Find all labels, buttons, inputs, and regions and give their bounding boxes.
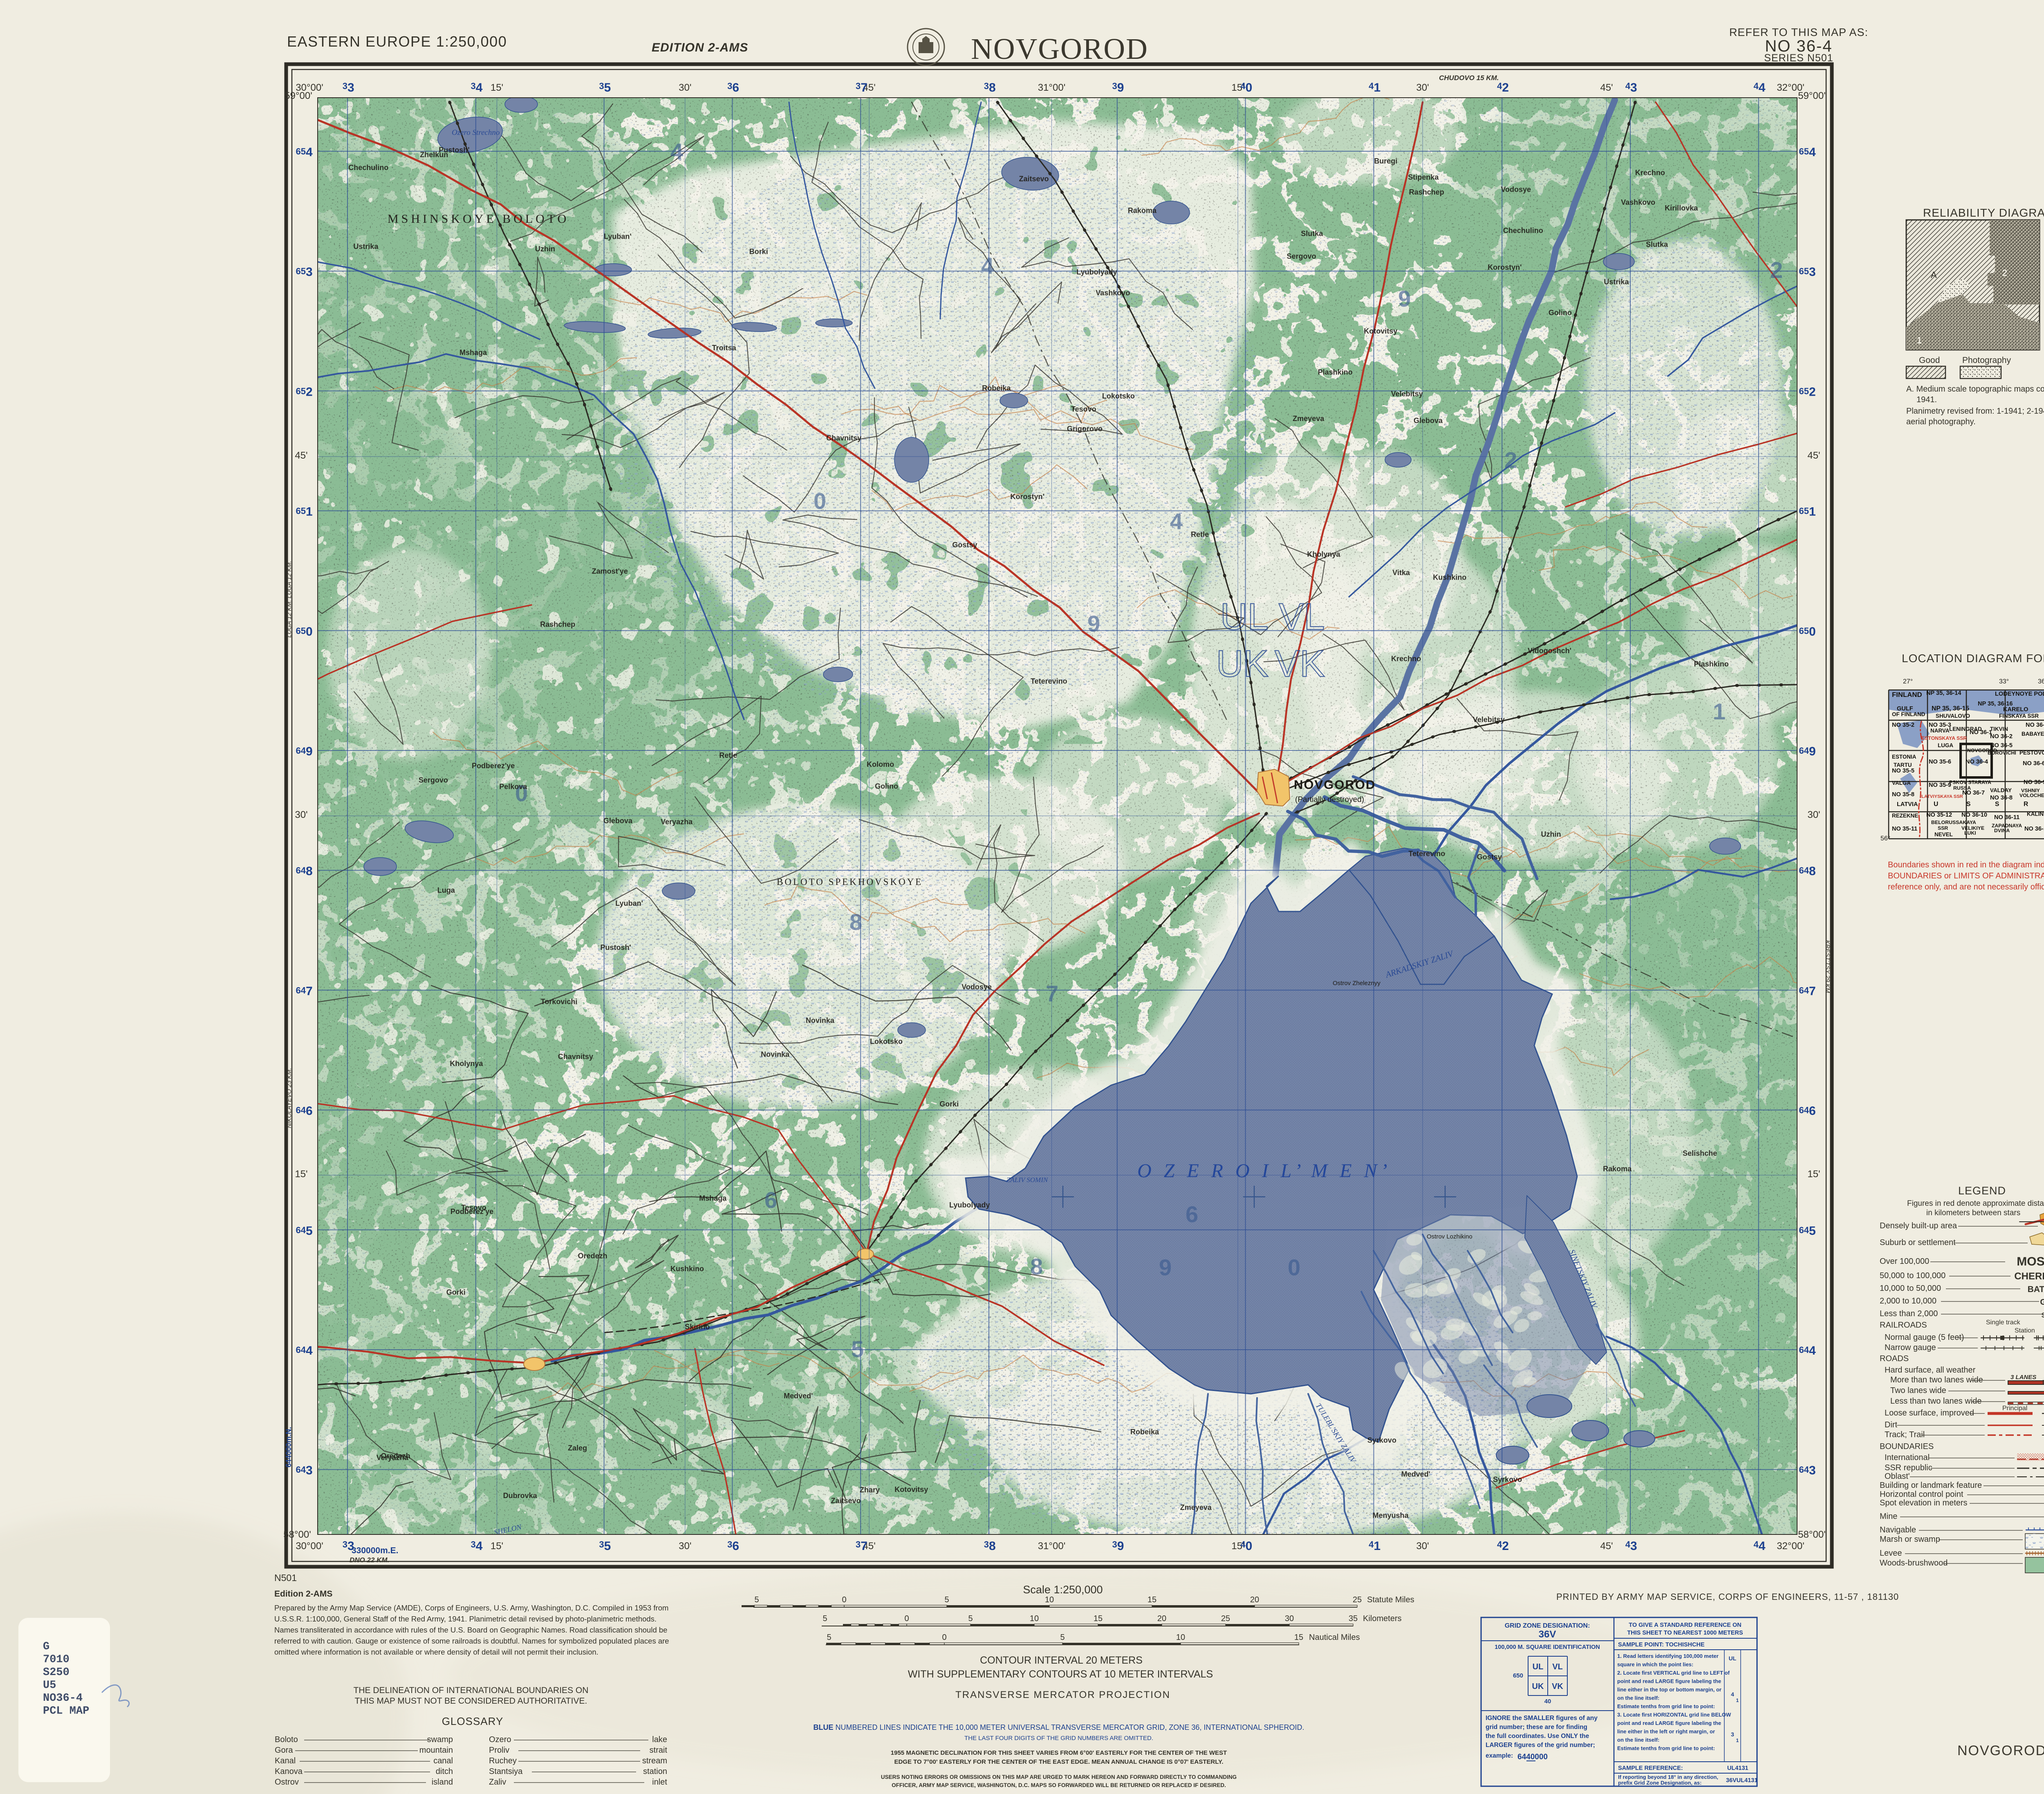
svg-text:3: 3	[343, 1539, 347, 1550]
svg-text:6: 6	[306, 1104, 313, 1118]
svg-text:Ustrika: Ustrika	[353, 242, 379, 251]
svg-text:3: 3	[1630, 1539, 1637, 1553]
svg-text:Kanova: Kanova	[275, 1767, 303, 1776]
svg-text:Golino: Golino	[1549, 309, 1572, 317]
svg-text:Novinka: Novinka	[806, 1017, 835, 1025]
svg-text:0: 0	[1246, 81, 1253, 94]
svg-text:aerial photography.: aerial photography.	[1906, 417, 1976, 426]
svg-text:7: 7	[306, 984, 313, 998]
svg-text:strait: strait	[650, 1746, 668, 1755]
svg-text:Single track: Single track	[1986, 1319, 2021, 1326]
svg-text:GLOSSARY: GLOSSARY	[442, 1715, 504, 1727]
svg-text:Krechno: Krechno	[1391, 655, 1421, 663]
svg-text:2: 2	[1809, 385, 1816, 399]
svg-text:S250: S250	[43, 1666, 69, 1679]
svg-text:4: 4	[1809, 1344, 1816, 1357]
svg-text:reference only, and are not ne: reference only, and are not necessarily …	[1888, 882, 2044, 891]
svg-text:KREST'TSY 29 KM.: KREST'TSY 29 KM.	[1824, 940, 1831, 994]
svg-text:30°00': 30°00'	[296, 1541, 323, 1552]
svg-text:64: 64	[1799, 1465, 1809, 1475]
svg-text:Mshaga: Mshaga	[459, 348, 487, 356]
svg-text:LODEYNOYE POLE: LODEYNOYE POLE	[1995, 691, 2044, 697]
svg-text:Zmeyeva: Zmeyeva	[1180, 1503, 1212, 1512]
svg-text:3: 3	[1112, 1539, 1117, 1550]
svg-text:4: 4	[1754, 1539, 1759, 1550]
svg-text:0: 0	[904, 1614, 909, 1623]
svg-text:Boundaries shown in red in the: Boundaries shown in red in the diagram i…	[1888, 860, 2044, 869]
svg-text:REZEKNE: REZEKNE	[1892, 813, 1918, 819]
svg-text:36V: 36V	[1539, 1629, 1556, 1640]
svg-text:Lyubolyady: Lyubolyady	[949, 1201, 990, 1209]
svg-text:ESTONSKAYA SSR: ESTONSKAYA SSR	[1921, 735, 1967, 741]
svg-text:Buregi: Buregi	[1374, 157, 1397, 165]
svg-text:GRID ZONE DESIGNATION:: GRID ZONE DESIGNATION:	[1505, 1622, 1590, 1629]
svg-text:NO 36-7: NO 36-7	[1962, 790, 1985, 796]
svg-text:6: 6	[764, 1187, 777, 1213]
svg-text:station: station	[643, 1767, 667, 1776]
svg-text:Lyuban': Lyuban'	[604, 233, 632, 241]
svg-text:TRANSVERSE MERCATOR PROJECTION: TRANSVERSE MERCATOR PROJECTION	[955, 1689, 1170, 1700]
svg-text:Track; Trail: Track; Trail	[1885, 1430, 1925, 1439]
svg-text:Spot elevation in meters: Spot elevation in meters	[1880, 1498, 1968, 1507]
svg-text:4: 4	[1625, 1539, 1631, 1550]
svg-text:BOROVICHI: BOROVICHI	[1988, 750, 2016, 756]
svg-text:Navigable: Navigable	[1880, 1525, 1916, 1534]
svg-text:Woods-brushwood: Woods-brushwood	[1880, 1559, 1948, 1568]
svg-text:2: 2	[1502, 81, 1509, 94]
svg-text:Levee: Levee	[1880, 1549, 1902, 1558]
svg-text:Uzhin: Uzhin	[535, 245, 555, 253]
svg-text:WITH SUPPLEMENTARY CONTOURS AT: WITH SUPPLEMENTARY CONTOURS AT 10 METER …	[908, 1669, 1213, 1680]
svg-text:6: 6	[1809, 1104, 1816, 1118]
svg-text:7: 7	[861, 1539, 867, 1553]
svg-text:O Z E R O I L’ M E N’: O Z E R O I L’ M E N’	[1137, 1160, 1391, 1182]
svg-text:More than two lanes wide: More than two lanes wide	[1890, 1375, 1983, 1384]
svg-text:58°00': 58°00'	[283, 1529, 311, 1540]
svg-text:3: 3	[347, 81, 354, 94]
svg-text:Kushkino: Kushkino	[670, 1265, 704, 1273]
svg-text:NO36-4: NO36-4	[43, 1692, 83, 1704]
svg-text:island: island	[432, 1778, 453, 1787]
svg-text:FINLAND: FINLAND	[1892, 691, 1922, 699]
svg-text:TIKVIN: TIKVIN	[1990, 726, 2008, 732]
svg-text:Lokotsko: Lokotsko	[870, 1037, 903, 1046]
svg-text:1: 1	[306, 505, 313, 519]
svg-text:NEVEL: NEVEL	[1934, 831, 1953, 838]
svg-text:Vitka: Vitka	[1392, 569, 1410, 577]
svg-text:3. Locate first HORIZONTAL gri: 3. Locate first HORIZONTAL grid line BEL…	[1617, 1712, 1731, 1718]
svg-text:NO 36-3: NO 36-3	[2026, 722, 2044, 728]
svg-text:9: 9	[1159, 1254, 1172, 1280]
svg-text:NO 36-10: NO 36-10	[1961, 812, 1987, 818]
svg-text:4: 4	[1369, 1539, 1374, 1550]
svg-text:65: 65	[296, 266, 306, 276]
svg-text:Rakoma: Rakoma	[1128, 206, 1157, 215]
svg-text:Less than 2,000: Less than 2,000	[1880, 1309, 1938, 1318]
svg-text:Proliv: Proliv	[489, 1746, 509, 1755]
svg-text:4: 4	[1240, 1539, 1246, 1550]
svg-text:BOUNDARIES: BOUNDARIES	[1880, 1442, 1934, 1451]
svg-text:S: S	[1995, 801, 1999, 808]
svg-text:15: 15	[1148, 1595, 1156, 1604]
svg-text:ESTONIA: ESTONIA	[1892, 754, 1916, 760]
svg-text:Mine: Mine	[1880, 1512, 1897, 1521]
svg-text:Veryazha: Veryazha	[661, 818, 693, 826]
svg-text:RELIABILITY DIAGRAM: RELIABILITY DIAGRAM	[1923, 206, 2044, 219]
svg-text:100,000 M. SQUARE IDENTIFICATI: 100,000 M. SQUARE IDENTIFICATION	[1495, 1644, 1600, 1651]
svg-text:Station: Station	[2015, 1327, 2035, 1334]
svg-text:Kotovitsy: Kotovitsy	[1364, 327, 1397, 335]
svg-text:Stantsiya: Stantsiya	[489, 1767, 523, 1776]
svg-text:Slutka: Slutka	[1301, 229, 1323, 237]
svg-text:THIS SHEET TO NEAREST 1000 MET: THIS SHEET TO NEAREST 1000 METERS	[1627, 1630, 1743, 1636]
svg-text:LEGEND: LEGEND	[1958, 1185, 2006, 1197]
svg-text:Chavnitsy: Chavnitsy	[826, 434, 861, 442]
svg-text:3: 3	[1112, 81, 1117, 91]
svg-text:THE DELINEATION OF INTERNATION: THE DELINEATION OF INTERNATIONAL BOUNDAR…	[354, 1686, 589, 1695]
svg-text:Gostsy: Gostsy	[1477, 853, 1502, 861]
svg-text:65: 65	[296, 146, 306, 157]
svg-text:Good: Good	[1919, 356, 1940, 365]
svg-text:on the line itself:: on the line itself:	[1617, 1737, 1659, 1743]
svg-text:5: 5	[604, 81, 611, 94]
svg-text:1. Read letters identifying: 1. Read letters identifying 100,000 mete…	[1617, 1653, 1719, 1659]
svg-text:Plashkino: Plashkino	[1318, 368, 1353, 376]
svg-text:1: 1	[1736, 1698, 1739, 1703]
svg-text:30': 30'	[1807, 809, 1820, 820]
svg-text:NO 35-12: NO 35-12	[1926, 812, 1952, 818]
svg-text:UK: UK	[1216, 643, 1269, 685]
svg-text:VOLOCHEK: VOLOCHEK	[2019, 793, 2044, 798]
svg-text:Slutka: Slutka	[1646, 240, 1668, 249]
svg-text:NO 35-5: NO 35-5	[1892, 768, 1914, 774]
svg-text:3: 3	[343, 81, 347, 91]
svg-text:6440000: 6440000	[1517, 1753, 1548, 1761]
svg-text:LARGER figures of the grid num: LARGER figures of the grid number;	[1486, 1742, 1595, 1749]
svg-text:Robeika: Robeika	[1130, 1428, 1159, 1436]
svg-text:ZALIV SOMIN: ZALIV SOMIN	[1006, 1176, 1049, 1184]
svg-text:31°00': 31°00'	[1038, 82, 1066, 93]
svg-text:Kotovitsy: Kotovitsy	[894, 1485, 928, 1494]
svg-text:NO 35-6: NO 35-6	[1929, 759, 1951, 765]
svg-text:PRINTED BY ARMY MAP SERVICE, C: PRINTED BY ARMY MAP SERVICE, CORPS OF EN…	[1556, 1592, 1899, 1602]
svg-text:64: 64	[296, 865, 306, 876]
svg-text:NO 36-5: NO 36-5	[1990, 742, 2013, 749]
svg-text:UL4131: UL4131	[1727, 1765, 1748, 1772]
svg-text:Rashchep: Rashchep	[540, 620, 575, 628]
svg-text:Tesovo: Tesovo	[1071, 405, 1096, 413]
svg-text:65: 65	[1799, 146, 1809, 157]
svg-text:Skirino: Skirino	[685, 1323, 710, 1331]
svg-text:LATVIA: LATVIA	[1897, 801, 1918, 808]
svg-text:Kholynya: Kholynya	[450, 1059, 483, 1068]
svg-text:Zhelkun: Zhelkun	[420, 150, 448, 159]
svg-text:4: 4	[1809, 146, 1816, 159]
svg-text:5: 5	[754, 1595, 759, 1604]
svg-text:Sergovo: Sergovo	[419, 776, 448, 784]
svg-text:NO 36-9: NO 36-9	[2024, 779, 2044, 786]
svg-text:65: 65	[296, 626, 306, 636]
svg-text:30': 30'	[679, 1541, 691, 1552]
svg-text:6: 6	[1186, 1201, 1198, 1227]
svg-text:REFER TO THIS MAP AS:: REFER TO THIS MAP AS:	[1729, 26, 1868, 38]
svg-text:(Partially destroyed): (Partially destroyed)	[1295, 795, 1364, 804]
svg-text:2. Locate first VERTICAL grid: 2. Locate first VERTICAL grid line to LE…	[1617, 1670, 1730, 1676]
svg-text:Uzhin: Uzhin	[1541, 830, 1561, 838]
svg-text:NP 35, 36-14: NP 35, 36-14	[1926, 690, 1961, 697]
svg-text:6: 6	[732, 81, 739, 94]
svg-text:VK: VK	[1552, 1682, 1563, 1691]
svg-text:3: 3	[599, 81, 604, 91]
svg-text:NP 35, 36-15: NP 35, 36-15	[1932, 705, 1969, 712]
svg-text:Zaleg: Zaleg	[568, 1444, 587, 1452]
svg-text:330000m.E.: 330000m.E.	[352, 1546, 398, 1555]
svg-text:Vashkovo: Vashkovo	[1621, 198, 1655, 206]
svg-text:0: 0	[306, 625, 313, 638]
svg-text:Syrkovo: Syrkovo	[1367, 1436, 1396, 1445]
svg-text:UL: UL	[1220, 596, 1269, 638]
svg-text:Pustosh': Pustosh'	[600, 943, 631, 952]
svg-text:3: 3	[727, 1539, 732, 1550]
svg-text:7: 7	[861, 81, 867, 94]
svg-text:VALGA: VALGA	[1892, 780, 1911, 786]
svg-text:stream: stream	[642, 1756, 667, 1765]
svg-text:on the line itself:: on the line itself:	[1617, 1695, 1659, 1701]
svg-text:1: 1	[1713, 699, 1726, 724]
svg-text:45': 45'	[1807, 450, 1820, 461]
svg-text:5: 5	[851, 1336, 864, 1362]
svg-text:1: 1	[1374, 1539, 1381, 1553]
svg-text:Rashchep: Rashchep	[1409, 188, 1444, 196]
svg-text:omitted where information is n: omitted where information is not availab…	[274, 1648, 598, 1656]
svg-text:36VUL4131: 36VUL4131	[1726, 1777, 1757, 1784]
svg-text:4: 4	[1731, 1691, 1734, 1698]
svg-text:Velebitsy: Velebitsy	[1391, 390, 1423, 398]
svg-text:EDITION 2-AMS: EDITION 2-AMS	[652, 41, 748, 54]
svg-text:LATVIYSKAYA SSR: LATVIYSKAYA SSR	[1921, 794, 1963, 799]
svg-text:RAILROADS: RAILROADS	[1880, 1321, 1927, 1330]
svg-text:Narrow gauge: Narrow gauge	[1885, 1343, 1936, 1352]
svg-text:40: 40	[1544, 1698, 1551, 1705]
svg-text:U5: U5	[43, 1680, 56, 1692]
svg-text:45': 45'	[1600, 82, 1613, 93]
svg-text:5: 5	[1060, 1633, 1065, 1642]
svg-text:VK: VK	[1275, 643, 1325, 685]
svg-text:U: U	[1934, 801, 1938, 808]
svg-text:Novinka: Novinka	[761, 1050, 790, 1059]
svg-text:EDGE TO 7°00' EASTERLY FOR THE: EDGE TO 7°00' EASTERLY FOR THE CENTER OF…	[894, 1758, 1223, 1765]
svg-text:CHERNIGOV: CHERNIGOV	[2014, 1271, 2044, 1282]
svg-text:650: 650	[1513, 1672, 1523, 1679]
svg-text:line either in the top or bott: line either in the top or bottom margin,…	[1617, 1686, 1721, 1693]
svg-text:Ostrov Lozhikino: Ostrov Lozhikino	[1427, 1233, 1472, 1240]
svg-text:45': 45'	[1600, 1541, 1613, 1552]
svg-text:SAMPLE POINT: TOCHISHCHE: SAMPLE POINT: TOCHISHCHE	[1618, 1642, 1705, 1648]
svg-text:3: 3	[599, 1539, 604, 1550]
svg-text:SSR republic: SSR republic	[1885, 1463, 1932, 1472]
svg-text:58°00': 58°00'	[1798, 1529, 1826, 1540]
svg-text:65: 65	[296, 506, 306, 516]
svg-text:64: 64	[1799, 865, 1809, 876]
svg-text:Loose surface, improved: Loose surface, improved	[1885, 1409, 1974, 1418]
svg-text:NOVGOROD, U.S.S.R.: NOVGOROD, U.S.S.R.	[1957, 1743, 2044, 1758]
svg-text:R: R	[2024, 801, 2028, 808]
svg-text:Chechulino: Chechulino	[1503, 226, 1543, 235]
svg-text:9: 9	[1398, 286, 1411, 311]
svg-text:Kholynya: Kholynya	[1307, 550, 1340, 558]
svg-text:4: 4	[981, 253, 994, 279]
svg-text:Zhary: Zhary	[860, 1486, 880, 1494]
svg-text:International: International	[1885, 1453, 1930, 1462]
svg-text:FINSKAYA SSR: FINSKAYA SSR	[1999, 713, 2039, 719]
svg-text:4: 4	[476, 81, 483, 94]
svg-text:9: 9	[306, 745, 313, 758]
svg-text:Gorki: Gorki	[939, 1100, 959, 1108]
svg-text:5: 5	[944, 1595, 949, 1604]
svg-text:SSR: SSR	[1938, 825, 1948, 831]
svg-text:TARTU: TARTU	[1894, 762, 1912, 768]
svg-text:64: 64	[1799, 1225, 1809, 1235]
svg-text:BABAYEVO: BABAYEVO	[2022, 731, 2044, 737]
svg-text:NOVGOROD: NOVGOROD	[1294, 777, 1376, 792]
svg-text:65: 65	[1799, 386, 1809, 396]
svg-text:USERS NOTING ERRORS OR OMISSIO: USERS NOTING ERRORS OR OMISSIONS ON THIS…	[881, 1774, 1237, 1780]
svg-text:Torkovichi: Torkovichi	[541, 997, 578, 1006]
svg-text:Ozero: Ozero	[489, 1735, 511, 1744]
svg-text:KARELO: KARELO	[2003, 706, 2028, 713]
svg-text:OF FINLAND: OF FINLAND	[1892, 711, 1925, 717]
svg-text:64: 64	[1799, 1105, 1809, 1115]
svg-text:30': 30'	[1416, 82, 1429, 93]
svg-text:65: 65	[296, 386, 306, 396]
svg-text:64: 64	[296, 985, 306, 995]
svg-text:Mshaga: Mshaga	[699, 1194, 727, 1202]
svg-text:Plashkino: Plashkino	[1694, 660, 1729, 668]
svg-text:4: 4	[1170, 508, 1183, 534]
svg-text:7: 7	[1046, 981, 1058, 1006]
svg-text:Hard surface, all weather: Hard surface, all weather	[1885, 1366, 1976, 1375]
svg-text:59°00': 59°00'	[285, 90, 312, 101]
svg-text:Grigorovo: Grigorovo	[1067, 425, 1103, 433]
svg-text:15': 15'	[295, 1169, 307, 1180]
svg-text:Retle: Retle	[1191, 531, 1209, 539]
svg-text:4: 4	[1759, 1539, 1766, 1553]
svg-text:Selishche: Selishche	[1683, 1149, 1717, 1158]
svg-text:Medved': Medved'	[1401, 1470, 1430, 1478]
svg-text:Sergovo: Sergovo	[1286, 252, 1316, 260]
svg-text:2: 2	[1502, 1539, 1509, 1553]
svg-text:64: 64	[296, 1465, 306, 1475]
svg-text:Zmeyeva: Zmeyeva	[1293, 414, 1325, 423]
svg-text:KALININ: KALININ	[2027, 811, 2044, 817]
svg-text:30': 30'	[295, 809, 307, 820]
svg-text:Estimate tenths from grid: Estimate tenths from grid line to point:	[1617, 1745, 1715, 1751]
svg-text:0: 0	[942, 1633, 946, 1642]
svg-text:3: 3	[984, 81, 989, 91]
svg-text:Dirt: Dirt	[1885, 1420, 1898, 1429]
svg-text:DNO 22 KM.: DNO 22 KM.	[350, 1556, 389, 1564]
svg-text:4: 4	[670, 139, 683, 164]
svg-text:10: 10	[1045, 1595, 1054, 1604]
svg-text:Suburb or settlement: Suburb or settlement	[1880, 1238, 1956, 1247]
svg-text:10: 10	[1176, 1633, 1185, 1642]
svg-text:5: 5	[306, 1224, 313, 1238]
svg-text:1955 MAGNETIC DECLINATION FOR: 1955 MAGNETIC DECLINATION FOR THIS SHEET…	[891, 1749, 1227, 1756]
svg-text:6: 6	[732, 1539, 739, 1553]
svg-text:Chechulino: Chechulino	[348, 163, 388, 172]
svg-text:30: 30	[1285, 1614, 1294, 1623]
svg-text:the full coordinates. Use ONLY: the full coordinates. Use ONLY the	[1486, 1733, 1589, 1740]
svg-text:LOCATION DIAGRAM FOR NO 36-4: LOCATION DIAGRAM FOR NO 36-4	[1902, 652, 2044, 665]
svg-text:65: 65	[1799, 506, 1809, 516]
svg-text:Vidogoshch': Vidogoshch'	[1528, 647, 1571, 655]
svg-text:Scale 1:250,000: Scale 1:250,000	[1023, 1583, 1103, 1596]
svg-text:15: 15	[1294, 1633, 1303, 1642]
svg-text:56°: 56°	[1880, 835, 1890, 842]
svg-text:Zaliv: Zaliv	[489, 1778, 506, 1787]
svg-text:NO 36-2: NO 36-2	[1990, 733, 2013, 740]
svg-text:NO 35-8: NO 35-8	[1892, 791, 1914, 798]
svg-text:N501: N501	[274, 1572, 297, 1583]
svg-text:PSKOV STARAYA: PSKOV STARAYA	[1949, 779, 1991, 785]
svg-text:Glebova: Glebova	[603, 817, 633, 825]
svg-text:Vashkovo: Vashkovo	[1096, 289, 1130, 297]
svg-text:9: 9	[1117, 81, 1124, 94]
svg-text:MOSKVA: MOSKVA	[2017, 1255, 2044, 1268]
svg-text:If reporting beyond 18° in any: If reporting beyond 18° in any direction…	[1618, 1774, 1718, 1780]
svg-text:2,000 to 10,000: 2,000 to 10,000	[1880, 1297, 1936, 1306]
svg-text:lake: lake	[652, 1735, 667, 1744]
svg-text:NO 36-12: NO 36-12	[2024, 826, 2044, 832]
svg-text:Two lanes wide: Two lanes wide	[1890, 1386, 1946, 1395]
svg-text:20: 20	[1250, 1595, 1259, 1604]
svg-text:Zamost'ye: Zamost'ye	[592, 567, 628, 576]
svg-text:4: 4	[1754, 81, 1759, 91]
svg-text:Photography: Photography	[1962, 356, 2011, 365]
svg-text:65: 65	[1799, 626, 1809, 636]
svg-text:64: 64	[1799, 1345, 1809, 1355]
svg-text:32°00': 32°00'	[1777, 1541, 1804, 1552]
svg-text:LUGA: LUGA	[1938, 742, 1953, 748]
svg-text:Luga: Luga	[437, 886, 455, 894]
svg-text:Estimate tenths from grid: Estimate tenths from grid line to point:	[1617, 1703, 1715, 1709]
svg-text:4: 4	[306, 146, 313, 159]
svg-text:Pelkova: Pelkova	[499, 783, 527, 791]
svg-text:S: S	[1966, 801, 1970, 808]
svg-text:Kanal: Kanal	[275, 1756, 296, 1765]
svg-text:U.S.S.R. 1:100,000, General St: U.S.S.R. 1:100,000, General Staff of the…	[274, 1615, 657, 1623]
svg-text:15': 15'	[491, 1541, 503, 1552]
svg-text:3: 3	[1809, 265, 1816, 279]
svg-text:BOUNDARIES or LIMITS OF ADMINI: BOUNDARIES or LIMITS OF ADMINISTRATION, …	[1888, 871, 2044, 880]
svg-text:Principal: Principal	[2002, 1405, 2027, 1412]
svg-text:Names transliterated in accord: Names transliterated in accordance with …	[274, 1626, 667, 1634]
svg-text:BATAYSK: BATAYSK	[2028, 1285, 2044, 1294]
svg-text:Oredezh: Oredezh	[578, 1252, 607, 1260]
svg-text:NOVGOROD: NOVGOROD	[971, 32, 1148, 65]
svg-text:2: 2	[306, 385, 313, 399]
svg-text:OFFICER, ARMY MAP SERVICE, WAS: OFFICER, ARMY MAP SERVICE, WASHINGTON, D…	[892, 1782, 1226, 1788]
svg-text:Rakoma: Rakoma	[1603, 1165, 1632, 1173]
svg-text:Velebitsy: Velebitsy	[1473, 716, 1505, 724]
svg-text:10,000 to 50,000: 10,000 to 50,000	[1880, 1284, 1941, 1293]
svg-text:Dubrovka: Dubrovka	[503, 1492, 538, 1500]
svg-text:Less than two lanes wide: Less than two lanes wide	[1890, 1397, 1981, 1406]
svg-text:DVINA: DVINA	[1994, 828, 2010, 833]
svg-text:Gora: Gora	[275, 1746, 293, 1755]
svg-text:9: 9	[1809, 745, 1816, 758]
svg-text:7010: 7010	[43, 1654, 69, 1666]
